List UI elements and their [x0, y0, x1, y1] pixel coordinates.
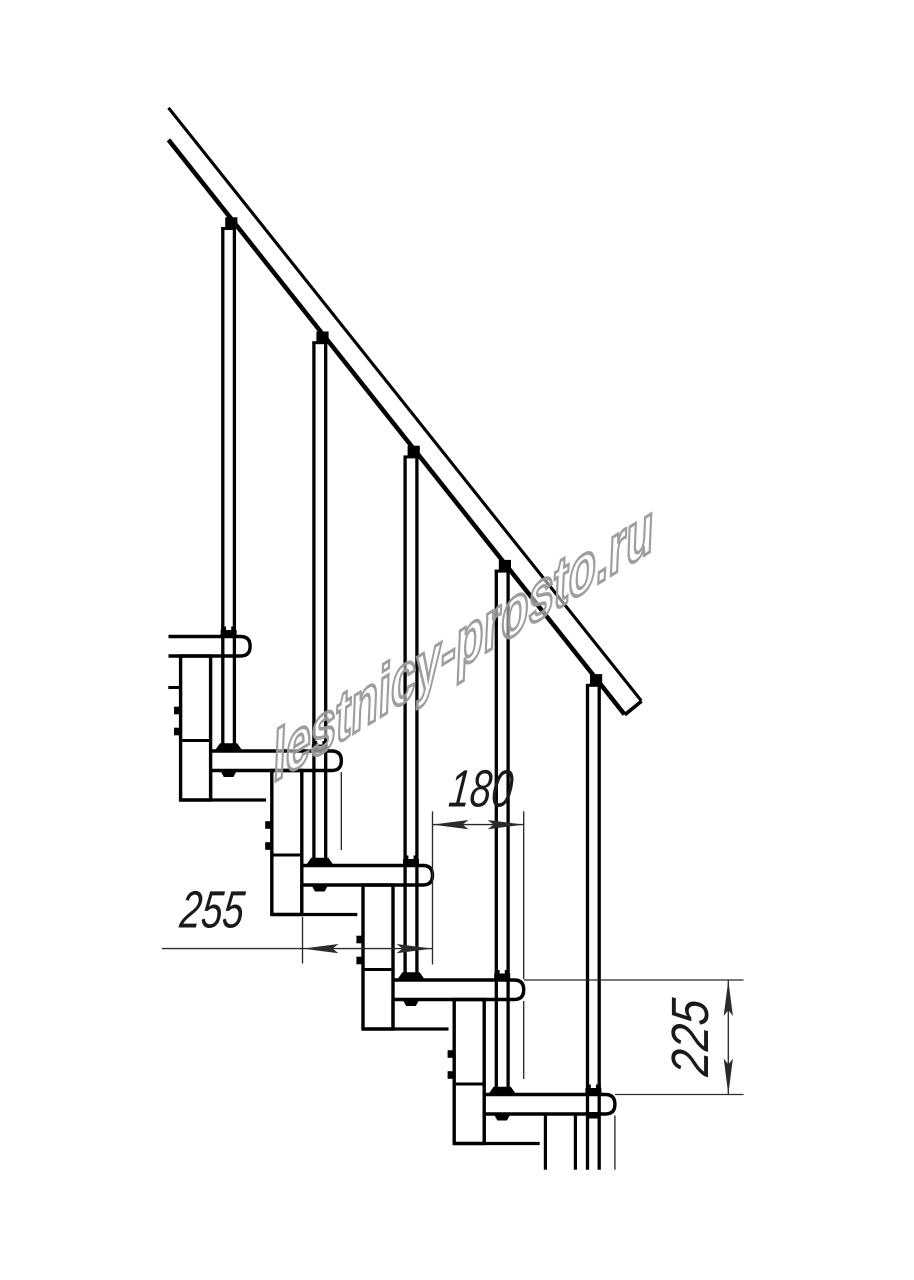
svg-text:180: 180 [446, 760, 516, 819]
svg-text:225: 225 [661, 995, 720, 1079]
svg-text:255: 255 [177, 881, 248, 940]
